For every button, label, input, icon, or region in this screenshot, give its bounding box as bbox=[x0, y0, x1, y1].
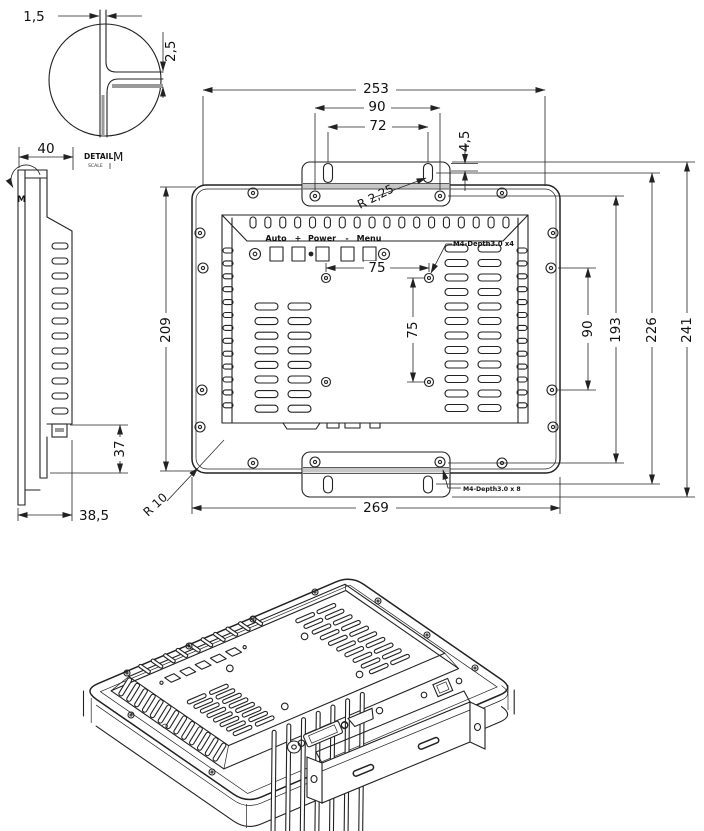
vent-bank-right bbox=[445, 245, 501, 412]
svg-text:M4-Depth3.0 x4: M4-Depth3.0 x4 bbox=[453, 240, 514, 248]
bottom-mounting-bracket bbox=[302, 452, 450, 497]
screw bbox=[421, 692, 427, 698]
button-menu[interactable] bbox=[363, 247, 376, 261]
svg-text:M: M bbox=[113, 150, 123, 164]
svg-text:241: 241 bbox=[679, 317, 695, 343]
button-power[interactable] bbox=[316, 247, 329, 261]
dim-bezel-thickness: 1,5 bbox=[23, 9, 142, 25]
osd-buttons: Auto + Power - Menu bbox=[250, 234, 390, 261]
svg-text:4,5: 4,5 bbox=[457, 131, 473, 152]
svg-text:40: 40 bbox=[37, 141, 54, 157]
dim-total-depth: 38,5 bbox=[18, 440, 109, 524]
dim-frame-height-226: 226 bbox=[436, 173, 660, 484]
screw bbox=[456, 678, 462, 684]
svg-text:38,5: 38,5 bbox=[79, 508, 109, 524]
connector-cutouts bbox=[283, 423, 380, 429]
svg-text:253: 253 bbox=[363, 81, 389, 97]
button-auto[interactable] bbox=[270, 247, 283, 261]
svg-text:75: 75 bbox=[405, 321, 421, 338]
power-led bbox=[309, 252, 314, 257]
button-plus[interactable] bbox=[292, 247, 305, 261]
isometric-view bbox=[84, 579, 515, 831]
usb-connector bbox=[433, 678, 453, 696]
dim-vesa-horizontal-75: 75 bbox=[326, 260, 429, 276]
svg-text:75: 75 bbox=[368, 260, 385, 276]
label-power: Power bbox=[308, 234, 336, 243]
svg-text:M4-Depth3.0 x 8: M4-Depth3.0 x 8 bbox=[463, 486, 521, 493]
note-vesa: M4-Depth3.0 x4 bbox=[431, 240, 514, 273]
label-plus: + bbox=[295, 234, 302, 243]
dim-bracket-slots-72: 72 bbox=[328, 118, 428, 162]
dim-corner-radius: R 10 bbox=[140, 440, 224, 519]
svg-text:M: M bbox=[17, 195, 26, 205]
side-view: M 40 37 38,5 bbox=[11, 141, 128, 524]
label-minus: - bbox=[345, 234, 348, 243]
iso-top-slot-row bbox=[140, 618, 260, 672]
label-menu: Menu bbox=[357, 234, 382, 243]
svg-text:209: 209 bbox=[158, 317, 174, 343]
dim-bracket-offset-45: 4,5 bbox=[451, 131, 478, 191]
dim-vesa-vertical-75: 75 bbox=[404, 278, 424, 382]
frame-screws bbox=[195, 188, 558, 468]
technical-drawing: 1,5 2,5 DETAIL M SCALE bbox=[0, 0, 704, 831]
svg-text:37: 37 bbox=[112, 440, 128, 457]
back-view: Auto + Power - Menu bbox=[140, 81, 695, 519]
dim-left-height-209: 209 bbox=[157, 187, 196, 471]
svg-text:269: 269 bbox=[363, 500, 389, 516]
dim-bezel-lip: 2,5 bbox=[163, 32, 179, 98]
dim-depth-40: 40 bbox=[19, 141, 73, 170]
chassis-top-slot-row bbox=[250, 217, 509, 228]
svg-text:90: 90 bbox=[580, 320, 596, 337]
svg-text:90: 90 bbox=[368, 99, 385, 115]
svg-text:193: 193 bbox=[608, 317, 624, 343]
svg-text:DETAIL: DETAIL bbox=[84, 152, 113, 161]
svg-text:R 10: R 10 bbox=[140, 490, 170, 519]
iso-vent-banks bbox=[189, 605, 407, 733]
iso-left-vent-bank bbox=[121, 680, 224, 759]
dim-label: 2,5 bbox=[163, 41, 179, 62]
dim-label: 1,5 bbox=[23, 9, 44, 25]
svg-text:72: 72 bbox=[369, 118, 386, 134]
label-auto: Auto bbox=[265, 234, 287, 243]
detail-m-caption: DETAIL M SCALE bbox=[84, 150, 123, 169]
button-minus[interactable] bbox=[341, 247, 354, 261]
vent-bank-left bbox=[255, 303, 311, 412]
dim-side-holes-90: 90 bbox=[558, 268, 596, 390]
svg-text:SCALE: SCALE bbox=[88, 163, 103, 169]
side-vent-slots bbox=[52, 243, 68, 414]
svg-text:226: 226 bbox=[644, 317, 660, 343]
